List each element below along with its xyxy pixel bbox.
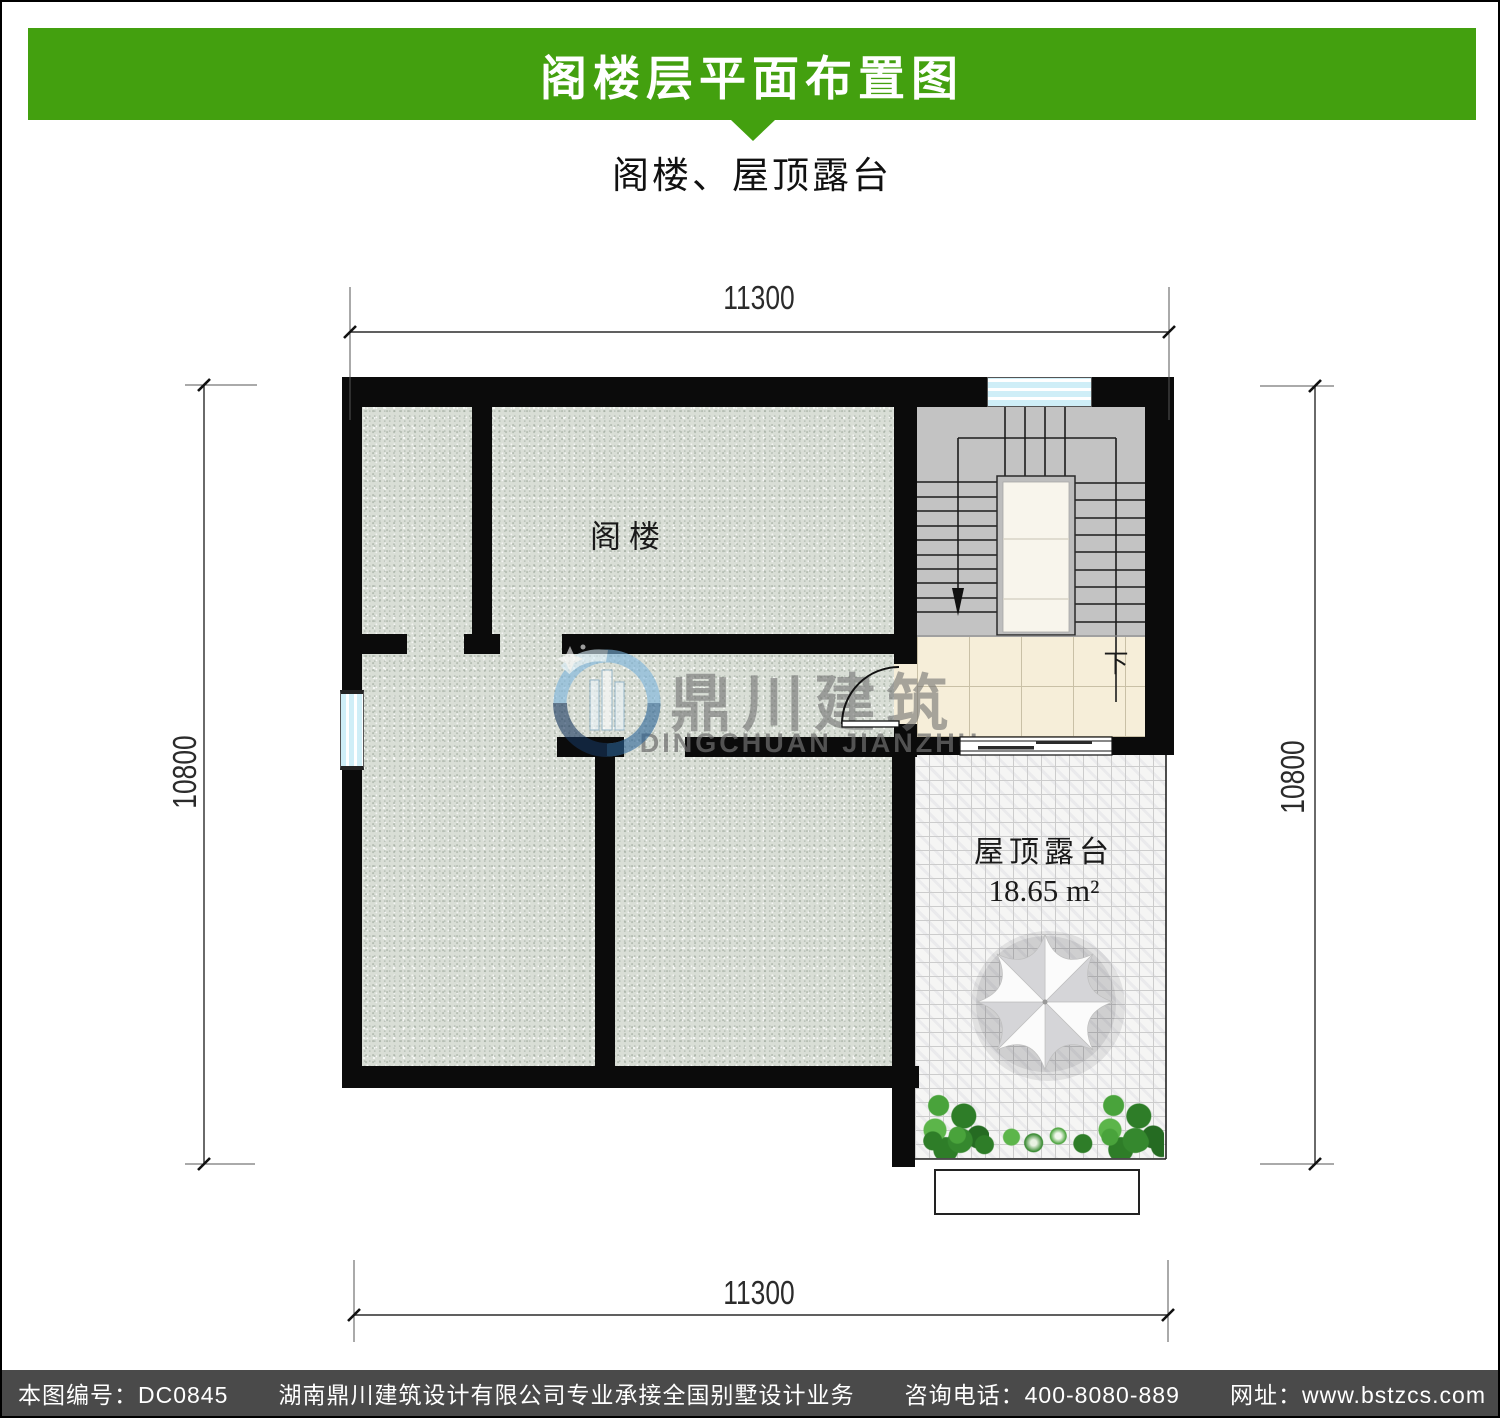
title-banner: 阁楼层平面布置图 [28, 28, 1476, 120]
wall-attic-bottom [342, 1066, 919, 1088]
stair-down-label: 下 [1103, 644, 1128, 680]
wall-right [1145, 377, 1174, 755]
wall-partition-h1-stub [362, 634, 407, 654]
plant-row-icon [918, 1120, 1164, 1158]
wall-partition-v1-foot [464, 634, 500, 654]
dim-right-value: 10800 [1274, 740, 1312, 813]
wall-stair-divider-upper [894, 407, 917, 664]
terrace-area-label: 18.65 m² [989, 873, 1100, 909]
wall-partition-v1 [472, 407, 492, 634]
wall-hall-bottom-right [1112, 737, 1174, 755]
footer-bar: 本图编号：DC0845 湖南鼎川建筑设计有限公司专业承接全国别墅设计业务 咨询电… [2, 1370, 1500, 1416]
wall-terrace-left [892, 755, 915, 1167]
window-top-icon [987, 377, 1092, 407]
banner-pointer-triangle [731, 120, 775, 141]
footer-phone: 咨询电话：400-8080-889 [905, 1376, 1180, 1410]
dim-left-value: 10800 [166, 735, 204, 808]
watermark-en-text: DINGCHUAN JIANZHU [640, 728, 981, 759]
page-subtitle: 阁楼、屋顶露台 [2, 145, 1500, 199]
terrace-room-label: 屋顶露台 [974, 827, 1114, 871]
dim-bottom-value: 11300 [723, 1274, 794, 1312]
footer-drawing-number: 本图编号：DC0845 [18, 1376, 228, 1410]
dim-top-value: 11300 [723, 279, 794, 317]
footer-company-info: 湖南鼎川建筑设计有限公司专业承接全国别墅设计业务 [279, 1376, 855, 1410]
floor-plan-page: 阁楼层平面布置图 阁楼、屋顶露台 [0, 0, 1500, 1418]
wall-partition-h2a [557, 737, 624, 757]
footer-website: 网址：www.bstzcs.com [1230, 1376, 1486, 1410]
page-title: 阁楼层平面布置图 [540, 40, 964, 109]
window-left-icon [340, 690, 364, 770]
sliding-door-icon [960, 737, 1112, 755]
attic-room-label: 阁楼 [590, 512, 668, 557]
stairwell-floor-area [917, 407, 1145, 637]
wall-partition-v2 [595, 757, 615, 1066]
wall-partition-h1 [562, 634, 894, 654]
